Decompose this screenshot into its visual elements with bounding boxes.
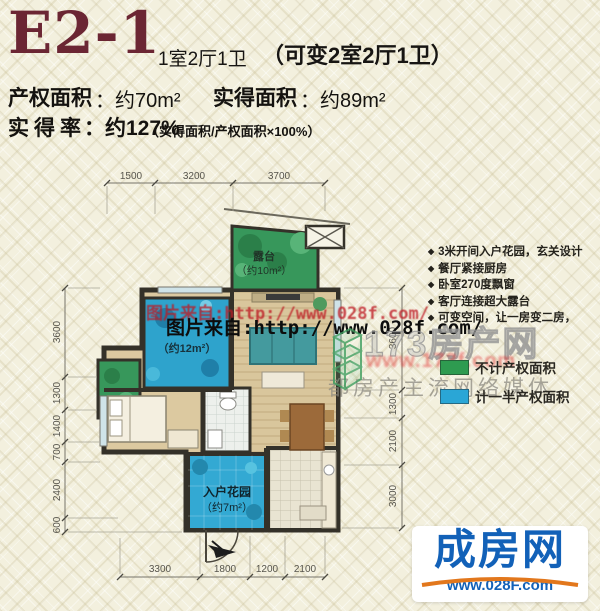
actual-area-label: 实得面积 [213,82,297,112]
legend-row-blue: 计一半产权面积 [440,386,570,406]
balcony-area: 露台 （约10m²） [224,209,350,290]
toilet [220,398,236,410]
dim-left-2: 1400 [52,414,63,437]
dim-top-0: 1500 [120,171,143,182]
orange-swoosh-icon [418,572,582,588]
diamond-bullet-icon: ◆ [428,313,434,322]
ratio-label: 实得率 [8,112,86,142]
logo-name: 成房网 [412,527,588,573]
legend-row-green: 不计产权面积 [440,357,570,377]
feature-text: 卧室270度飘窗 [438,279,515,291]
property-area-value: ：约70m² [95,84,181,113]
ratio-formula: （实得面积/产权面积×100%） [146,121,320,140]
feature-item: ◆3米开间入户花园，玄关设计 [428,244,600,261]
entry-garden: 入户花园 （约7m²） [188,454,266,530]
feature-text: 餐厅紧接厨房 [438,263,507,275]
dim-right-3: 3000 [388,484,399,507]
diamond-bullet-icon: ◆ [428,297,434,306]
feature-item: ◆客厅连接超大露台 [428,294,600,311]
dim-left-1: 1300 [52,381,63,404]
legend-green-label: 不计产权面积 [475,357,556,377]
diamond-bullet-icon: ◆ [428,247,434,256]
bathroom [204,388,250,452]
property-area-label: 产权面积 [8,82,92,112]
dim-bottom-1: 1800 [214,564,237,575]
room12-area-label: （约12m²） [158,341,217,355]
feature-item: ◆可变空间，让一房变二房， [428,310,600,327]
dim-bottom-0: 3300 [149,564,172,575]
garden-label: 入户花园 [203,484,251,499]
actual-area-value: ：约89m² [300,84,386,113]
dim-right-2: 2100 [388,429,399,452]
feature-item: ◆卧室270度飘窗 [428,277,600,294]
feature-list: ◆3米开间入户花园，玄关设计 ◆餐厅紧接厨房 ◆卧室270度飘窗 ◆客厅连接超大… [428,244,600,327]
feature-text: 客厅连接超大露台 [438,296,530,308]
feature-item: ◆餐厅紧接厨房 [428,261,600,278]
dim-bottom-3: 2100 [294,564,317,575]
shower [208,430,222,448]
dim-left-4: 2400 [52,478,63,501]
wardrobe [168,430,198,448]
brand-building-icon [327,321,367,397]
dim-bottom-2: 1200 [256,564,279,575]
layout-text: 1室2厅1卫 [158,44,247,71]
dining-table [290,404,324,450]
blue-swatch [440,389,469,404]
chengfangwang-logo[interactable]: 成房网 www.028F.com [412,526,588,602]
legend-blue-label: 计一半产权面积 [475,386,570,406]
coffee-table [262,372,304,388]
stove [300,506,326,520]
dim-top-2: 3700 [268,171,291,182]
kitchen [268,448,338,530]
diamond-bullet-icon: ◆ [428,280,434,289]
balcony-label: 露台 [253,249,275,263]
dim-top-1: 3200 [183,171,206,182]
diamond-bullet-icon: ◆ [428,264,434,273]
sink [324,465,334,475]
balcony-area-label: （约10m²） [236,264,291,277]
feature-text: 可变空间，让一房变二房， [438,312,576,324]
garden-area-label: （约7m²） [201,501,253,514]
feature-text: 3米开间入户花园，玄关设计 [438,246,582,258]
dim-left-0: 3600 [52,320,63,343]
convertible-text: （可变2室2厅1卫） [262,38,453,70]
unit-code: E2-1 [8,4,161,62]
dim-left-3: 700 [52,443,63,460]
dim-left-5: 600 [52,516,63,533]
legend: 不计产权面积 计一半产权面积 [440,357,570,415]
green-swatch [440,360,469,375]
